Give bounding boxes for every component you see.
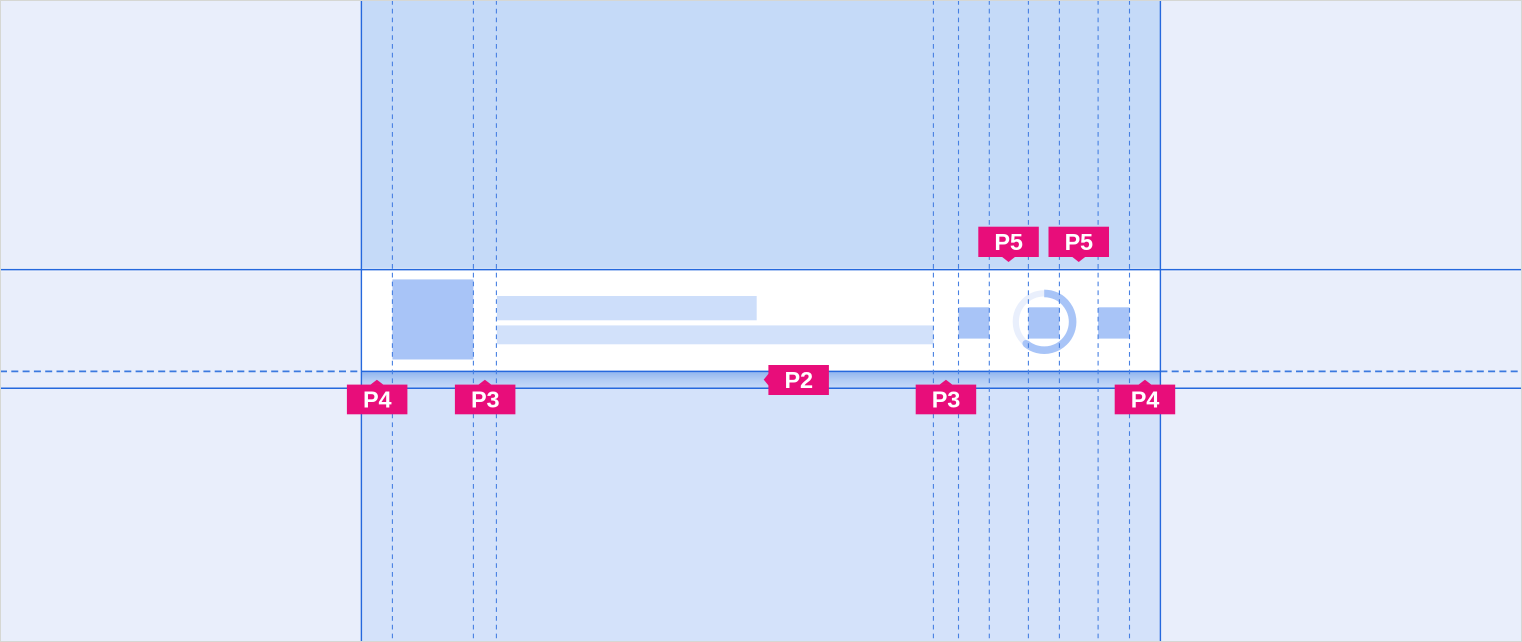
svg-text:P2: P2 (784, 367, 812, 393)
svg-text:P4: P4 (363, 387, 391, 413)
svg-text:P3: P3 (471, 387, 499, 413)
svg-text:P5: P5 (994, 229, 1022, 255)
svg-text:P5: P5 (1065, 229, 1093, 255)
svg-text:P4: P4 (1131, 387, 1159, 413)
svg-text:P3: P3 (932, 387, 960, 413)
